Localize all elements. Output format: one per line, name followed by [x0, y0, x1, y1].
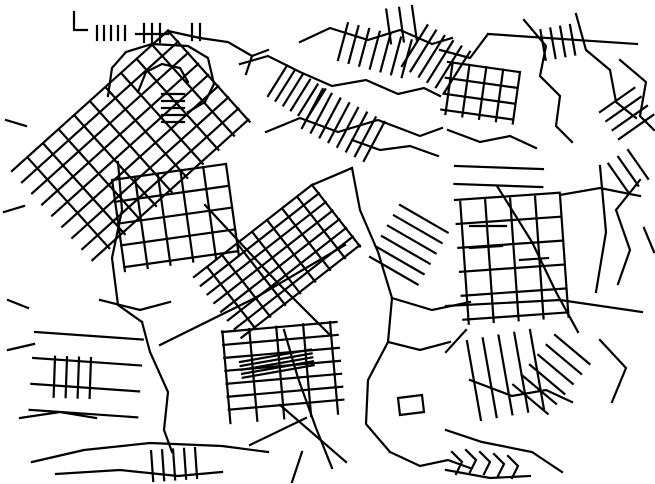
road-segment-rightmid-rows — [457, 217, 562, 224]
road-segment-rightbottom-verts — [514, 333, 528, 412]
road-segment-topright-comb — [560, 27, 565, 57]
road-segment-belowvoid-rows — [229, 400, 344, 410]
road-voidright-road-2 — [388, 342, 450, 350]
road-segment-topright-grid-rows — [441, 110, 512, 120]
road-segment-belowvoid-rows — [223, 335, 338, 345]
road-centertop-road-2 — [266, 118, 442, 136]
road-segment-rightmid-rows — [455, 193, 560, 200]
road-grid-center-branch — [246, 56, 252, 74]
road-segment-leftbottom-rows — [33, 358, 141, 366]
road-segment-leftmid-cols — [180, 170, 193, 261]
road-segment-leftbottom-comb — [151, 451, 153, 481]
road-segment-rightbottom-diag — [538, 355, 572, 384]
road-x-road-b — [280, 405, 346, 462]
road-left-stub-4 — [8, 344, 34, 350]
road-segment-central-rails — [241, 245, 359, 337]
road-tl-tr-connector — [440, 34, 488, 58]
road-segment-leftmid-rows — [121, 229, 235, 245]
road-segment-leftmid-cols — [226, 164, 239, 255]
map-viewport — [0, 0, 655, 484]
road-segment-topright-grid-rows — [446, 78, 517, 88]
road-leftmid-diag — [100, 300, 170, 310]
l-landmark-glyph — [74, 12, 87, 30]
road-segment-rightmid-top-rows — [455, 166, 543, 169]
road-rightbottom-bottom — [446, 470, 530, 478]
road-segment-centertop-comb-a — [268, 65, 287, 96]
road-segment-leftbottom-rungs — [90, 358, 91, 398]
road-segment-centertop-comb-a — [283, 75, 302, 106]
road-segment-leftmid-rows — [124, 251, 238, 267]
road-segment-voidright-ladder — [394, 215, 442, 243]
road-segment-voidright-ladder — [388, 226, 436, 254]
road-topright-road — [448, 130, 536, 148]
road-segment-belowvoid-rows — [227, 374, 342, 384]
road-left-stub-2 — [4, 206, 24, 212]
road-segment-leftbottom-rungs — [78, 358, 79, 398]
road-segment-centertop-comb-a — [299, 85, 318, 116]
road-left-stub-3 — [8, 300, 28, 308]
road-x-road-a — [250, 418, 306, 445]
road-segment-voidright-ladder — [382, 236, 430, 264]
road-segment-rightbottom-verts — [498, 336, 512, 415]
road-segment-central-rungs — [312, 185, 360, 246]
road-segment-rightmid-rows — [462, 288, 567, 295]
road-segment-centertop-comb-c — [381, 35, 391, 72]
road-squiggle-3 — [480, 452, 490, 474]
road-segment-topright-grid-cols — [462, 65, 469, 116]
road-segment-rightbottom-diag — [555, 335, 589, 364]
road-bottom-road-a — [32, 443, 268, 462]
road-segment-centertop-comb-c — [338, 23, 348, 60]
road-segment-centertop-comb-b — [364, 122, 385, 161]
road-rightbottom-link — [446, 330, 466, 352]
road-squiggle-2 — [466, 450, 476, 472]
road-bottom-square — [398, 395, 424, 415]
road-segment-centertop-comb-c — [359, 29, 369, 66]
road-rightmid-vertical — [596, 166, 606, 292]
road-voidright-road-1 — [392, 298, 470, 310]
road-segment-topright-comb — [550, 28, 555, 58]
road-segment-leftbottom-rungs — [54, 357, 55, 397]
road-segment-topright-grid-rows — [444, 94, 515, 104]
road-segment-rightbottom-diag — [547, 345, 581, 374]
road-segment-leftbottom-rows — [31, 384, 139, 392]
street-network-map — [0, 0, 655, 484]
road-segment-belowvoid-rows — [228, 387, 343, 397]
road-squiggle-4 — [494, 454, 504, 476]
road-segment-topright-grid-cols — [496, 70, 503, 121]
road-centertop-road-1 — [240, 56, 440, 96]
road-segment-voidright-ladder — [400, 205, 448, 233]
road-segment-leftbottom-comb — [162, 450, 164, 480]
road-segment-rightmid-rows — [460, 265, 565, 272]
road-segment-central-rails — [228, 228, 346, 320]
road-void-right-edge — [352, 168, 392, 452]
roads-layer — [4, 6, 654, 482]
road-segment-voidright-ladder — [370, 257, 418, 285]
road-segment-leftbottom-rows — [35, 332, 143, 340]
road-segment-rightbottom-verts — [483, 338, 497, 417]
road-farright-stub — [644, 228, 654, 252]
road-rightmid-inner-3 — [520, 258, 548, 260]
road-segment-topright-grid-cols — [479, 67, 486, 118]
road-segment-leftbottom-rungs — [66, 357, 67, 397]
road-segment-rightmid-rows — [463, 312, 568, 319]
road-segment-centertop-comb-a — [291, 80, 310, 111]
road-segment-centertop-comb-b — [346, 113, 367, 152]
road-void-top-edge — [312, 168, 352, 185]
road-segment-centertop-comb-b — [328, 103, 349, 142]
road-left-stub-1 — [6, 120, 26, 126]
road-segment-belowvoid-rows — [224, 348, 339, 358]
road-segment-rightmid-cols — [560, 195, 569, 317]
road-centertop-road-4 — [352, 140, 438, 156]
road-x-stub — [292, 452, 302, 482]
road-rightbottom-zigzag — [600, 340, 626, 402]
landmark-layer — [74, 12, 87, 30]
road-segment-centertop-comb-c — [349, 26, 359, 63]
road-segment-centertop-comb-a — [276, 70, 295, 101]
road-segment-topright-comb-diag — [600, 88, 634, 112]
road-segment-leftmid-cols — [203, 167, 216, 258]
road-segment-top-verticals — [399, 8, 404, 42]
road-segment-centertop-comb-c — [391, 38, 401, 75]
road-squiggle-5 — [508, 456, 518, 478]
road-segment-topright-grid-cols — [513, 72, 520, 123]
road-grid-center-link — [168, 31, 268, 56]
road-bottom-road-c — [390, 452, 470, 468]
